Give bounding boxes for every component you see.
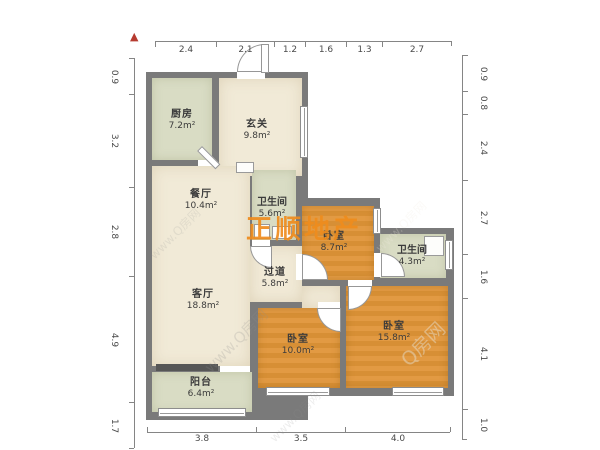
brand-watermark: 正顺地产: [246, 209, 362, 246]
window: [158, 408, 246, 417]
ruler-end-tick: [451, 41, 452, 46]
room-label-hallway: 过道5.8m²: [247, 266, 303, 291]
window: [445, 240, 453, 270]
ruler-end-tick: [462, 439, 467, 440]
doorway-gap: [237, 72, 265, 79]
ruler-end-tick: [129, 448, 134, 449]
ruler-right: 0.9 0.8 2.4 2.7 1.6 4.1 1.0: [462, 55, 468, 440]
doorway-gap: [220, 366, 250, 372]
floorplan-canvas: ▲ 2.4 2.1 1.2 1.6 1.3 2.7 3.8 3.5 4.0 0.…: [0, 0, 600, 450]
dimension-segment: 4.9: [129, 276, 135, 402]
dimension-segment: 2.4: [462, 114, 468, 180]
dimension-segment: 1.2: [274, 41, 305, 47]
dimension-segment: 3.8: [147, 427, 256, 433]
room-label-kitchen: 厨房7.2m²: [153, 108, 211, 133]
north-arrow-icon: ▲: [130, 30, 138, 43]
ruler-end-tick: [450, 427, 451, 432]
dimension-segment: 1.6: [462, 254, 468, 298]
dimension-segment: 2.7: [462, 180, 468, 254]
dimension-segment: 0.8: [462, 91, 468, 114]
cabinet-fixture: [236, 162, 254, 173]
window: [392, 387, 444, 396]
dimension-segment: 1.3: [346, 41, 382, 47]
room-label-living: 客厅18.8m²: [175, 288, 231, 313]
dimension-segment: 2.4: [155, 41, 216, 47]
room-label-entry: 玄关9.8m²: [229, 118, 285, 143]
dimension-segment: 2.7: [382, 41, 451, 47]
dimension-segment: 4.1: [462, 298, 468, 409]
room-label-bedroom-mid: 卧室10.0m²: [270, 333, 326, 358]
dimension-segment: 4.0: [345, 427, 450, 433]
room-label-balcony: 阳台6.4m²: [173, 376, 229, 401]
dimension-segment: 0.9: [129, 58, 135, 94]
dimension-segment: 1.6: [305, 41, 346, 47]
window: [300, 106, 308, 158]
ruler-top: 2.4 2.1 1.2 1.6 1.3 2.7: [155, 41, 452, 47]
dimension-segment: 3.2: [129, 94, 135, 187]
dimension-segment: 0.9: [462, 55, 468, 91]
doorway-gap: [374, 253, 381, 277]
dimension-segment: 1.0: [462, 409, 468, 439]
dimension-segment: 2.1: [216, 41, 274, 47]
ruler-bottom: 3.8 3.5 4.0: [147, 427, 451, 433]
dimension-segment: 1.7: [129, 402, 135, 448]
window: [373, 208, 381, 234]
ruler-left: 0.9 3.2 2.8 4.9 1.7: [129, 58, 135, 449]
dimension-segment: 2.8: [129, 187, 135, 276]
room-label-dining: 餐厅10.4m²: [173, 188, 229, 213]
